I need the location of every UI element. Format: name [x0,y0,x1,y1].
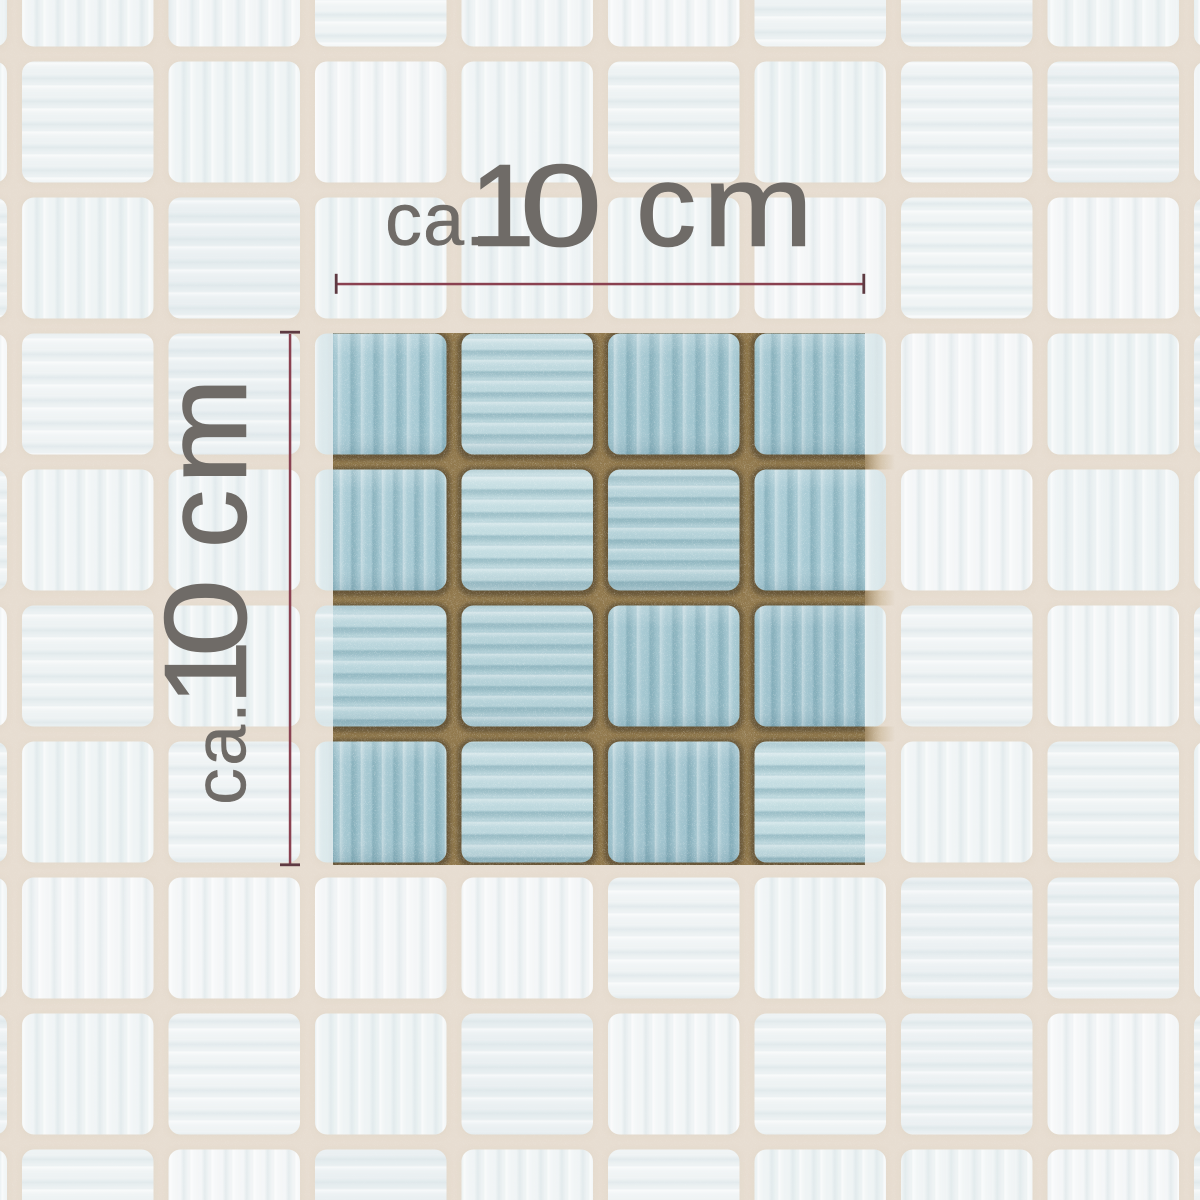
svg-text:0: 0 [520,141,602,271]
svg-text:c: c [141,490,271,548]
svg-text:m: m [703,141,813,271]
svg-text:c: c [636,141,696,271]
svg-text:m: m [141,378,271,484]
svg-text:0: 0 [141,579,271,657]
svg-text:ca.: ca. [179,700,262,805]
